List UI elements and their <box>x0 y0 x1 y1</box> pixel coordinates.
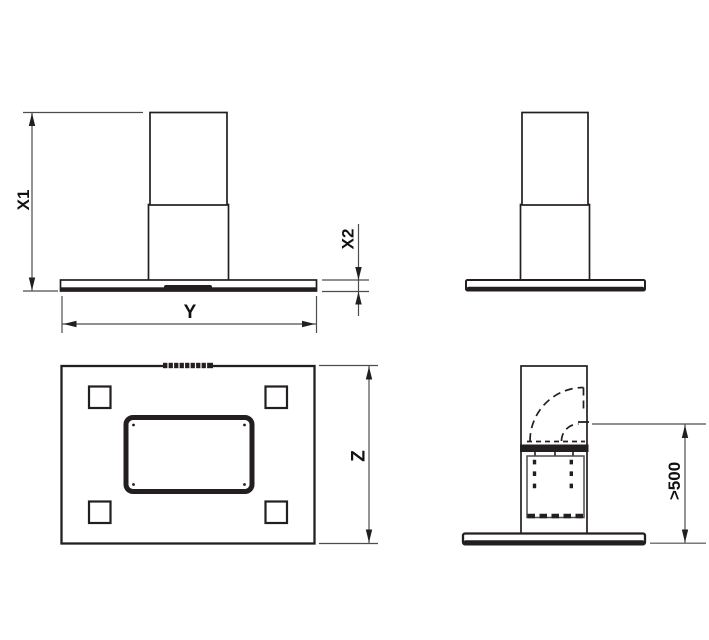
front-view <box>61 113 317 292</box>
chimney-lower-section <box>521 205 590 281</box>
mounting-bracket-bar <box>520 445 589 453</box>
dimension-clearance: >500 <box>592 424 706 543</box>
arrowhead-up <box>366 367 372 380</box>
arrowhead-down <box>682 530 688 543</box>
plan-view <box>62 363 315 544</box>
arrowhead-right <box>302 321 315 327</box>
dimension-label-z: Z <box>349 450 370 462</box>
vent-grille <box>163 363 213 368</box>
arrowhead-down <box>355 267 361 280</box>
screw-dot <box>132 483 135 486</box>
dimension-x1: X1 <box>14 113 143 292</box>
dimension-label-x1: X1 <box>14 190 33 211</box>
arrowhead-up <box>355 292 361 305</box>
dimension-y: Y <box>62 296 317 333</box>
dimension-label-y: Y <box>184 302 197 323</box>
dimension-label-x2: X2 <box>339 229 358 250</box>
mounting-hole-top-right <box>266 387 288 409</box>
dimension-label-clearance: >500 <box>665 462 684 500</box>
arrowhead-down <box>366 530 372 543</box>
chimney-upper-section <box>150 113 227 206</box>
light-strip <box>164 285 212 291</box>
chimney-lower-section <box>149 205 229 281</box>
mounting-hole-bottom-left <box>89 502 111 524</box>
arrowhead-left <box>64 321 77 327</box>
hood-outline-top-view <box>62 366 315 544</box>
filter-frame <box>126 418 252 492</box>
mounting-hole-top-left <box>89 387 111 409</box>
hood-body-bottom-edge <box>464 540 644 544</box>
hood-body-bottom-edge <box>467 287 644 291</box>
arrowhead-down <box>29 278 35 291</box>
screw-dot <box>243 483 246 486</box>
installation-view <box>463 366 645 544</box>
hood-dimension-drawing: X1 X2 Y <box>0 0 709 640</box>
side-view <box>466 113 645 291</box>
mounting-hole-bottom-right <box>266 502 288 524</box>
arrowhead-up <box>29 113 35 126</box>
screw-dot <box>243 424 246 427</box>
arrowhead-up <box>682 425 688 438</box>
technical-drawing-canvas: X1 X2 Y <box>0 0 709 640</box>
dimension-z: Z <box>319 366 378 544</box>
dimension-x2: X2 <box>322 224 369 316</box>
screw-dot <box>132 424 135 427</box>
chimney-upper-section <box>522 113 588 206</box>
